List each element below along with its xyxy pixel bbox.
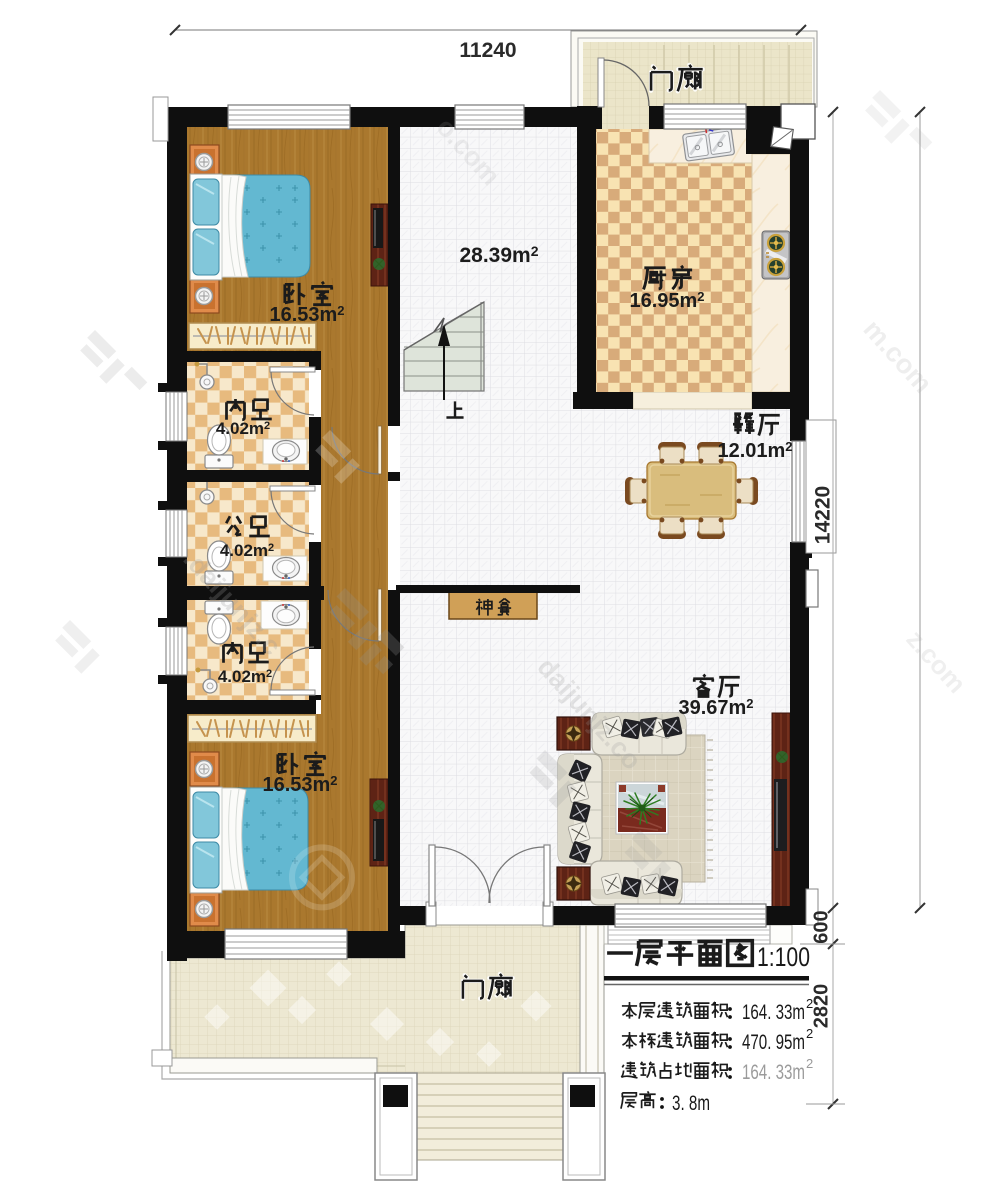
svg-text:39.67m2: 39.67m2 [678, 696, 753, 719]
svg-text:1:100: 1:100 [757, 942, 810, 972]
svg-text:16.95m2: 16.95m2 [629, 289, 704, 312]
svg-text:2: 2 [806, 1026, 813, 1041]
svg-text:3. 8m: 3. 8m [672, 1092, 710, 1115]
svg-text:12.01m2: 12.01m2 [717, 439, 792, 462]
svg-text:4.02m2: 4.02m2 [218, 667, 272, 686]
svg-text:164. 33m: 164. 33m [742, 1061, 805, 1084]
svg-text:600: 600 [810, 910, 832, 943]
svg-text:16.53m2: 16.53m2 [269, 303, 344, 326]
svg-text:470. 95m: 470. 95m [742, 1031, 805, 1054]
svg-text:2: 2 [806, 996, 813, 1011]
svg-text:2820: 2820 [810, 984, 832, 1029]
svg-text:28.39m2: 28.39m2 [459, 243, 538, 267]
svg-text:11240: 11240 [459, 39, 516, 62]
svg-text:4.02m2: 4.02m2 [220, 541, 274, 560]
svg-text:14220: 14220 [812, 486, 835, 544]
svg-text:164. 33m: 164. 33m [742, 1001, 805, 1024]
svg-text:4.02m2: 4.02m2 [216, 419, 270, 438]
svg-text:16.53m2: 16.53m2 [262, 773, 337, 796]
svg-text:2: 2 [806, 1056, 813, 1071]
